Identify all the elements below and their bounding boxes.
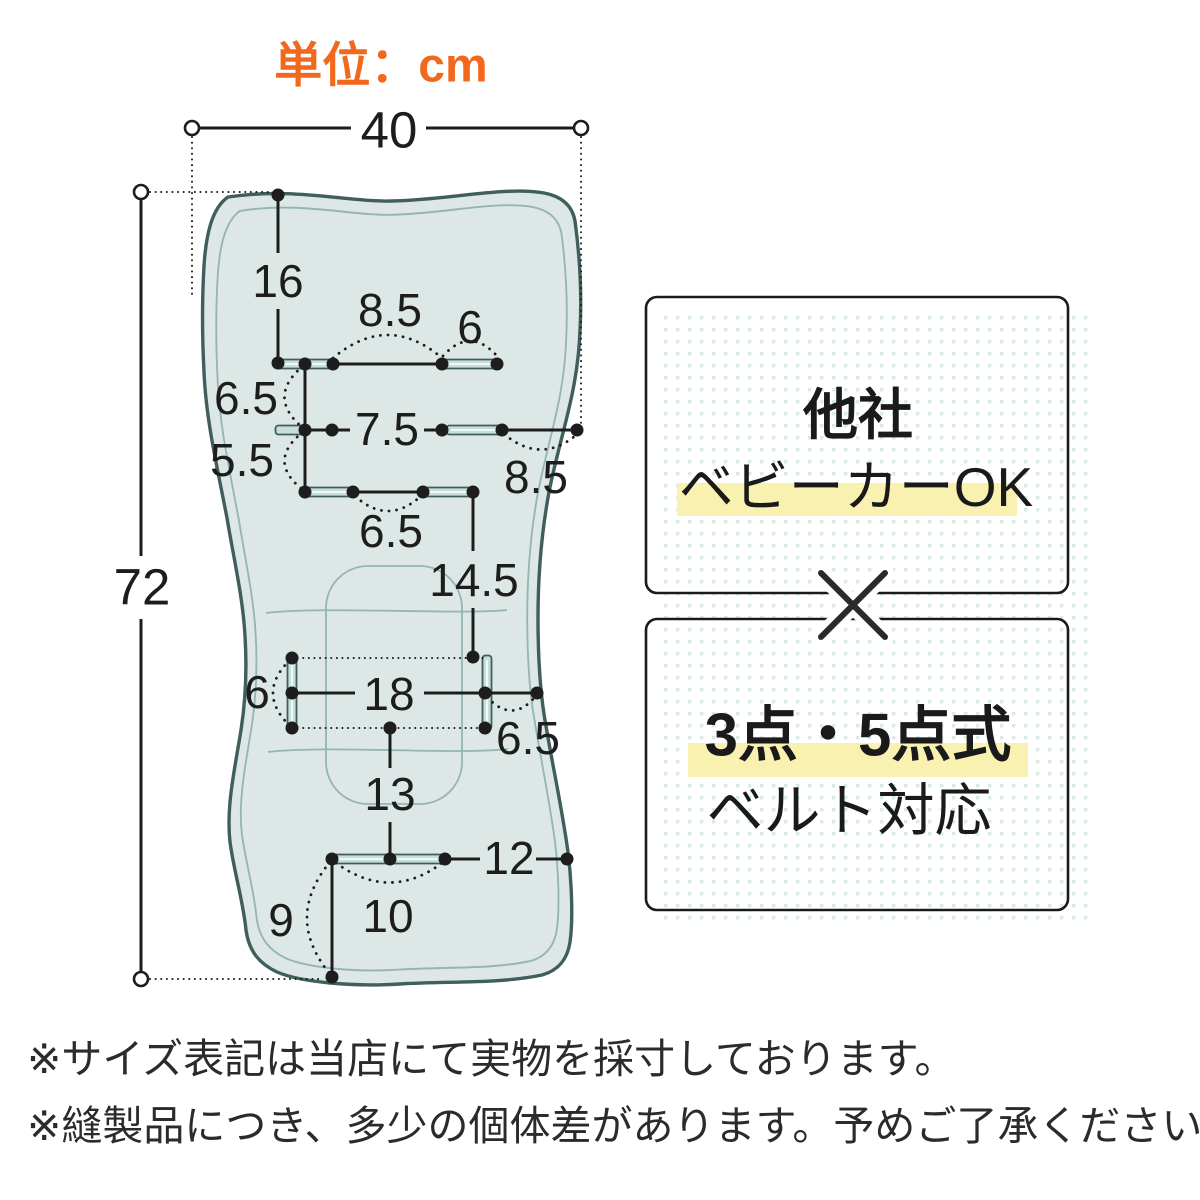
dim-waist-span: 18 [363, 668, 414, 720]
dim-row2-to-edge: 8.5 [504, 451, 568, 503]
footnote-variance: ※縫製品につき、多少の個体差があります。予めご了承ください。 [27, 1103, 1200, 1149]
dim-waist-slot: 6 [244, 666, 270, 718]
footnotes: ※サイズ表記は当店にて実物を採寸しております。 ※縫製品につき、多少の個体差があ… [27, 1036, 1200, 1149]
dim-bottom-to-hem: 9 [268, 894, 294, 946]
callout-box1-title: 他社 [802, 384, 913, 446]
callout-box1-highlight-text: ベビーカーOK [679, 456, 1034, 518]
dim-row1-to-row2: 6.5 [214, 372, 278, 424]
dim-row3-gap: 6.5 [359, 505, 423, 557]
dim-row2-to-row3: 5.5 [210, 434, 274, 486]
dim-waist-to-edge: 6.5 [496, 712, 560, 764]
dim-shoulder-slot: 6 [457, 301, 483, 353]
dim-row3-to-waist: 14.5 [429, 554, 519, 606]
dim-shoulder-gap: 8.5 [358, 284, 422, 336]
callout-box2-highlight-text: 3点・5点式 [705, 702, 1012, 769]
dim-bottom-to-edge: 12 [483, 832, 534, 884]
unit-label: 単位：cm [274, 40, 487, 93]
callout-box2-subtitle: ベルト対応 [707, 779, 992, 843]
footnote-measurement: ※サイズ表記は当店にて実物を採寸しております。 [27, 1036, 956, 1082]
size-diagram-canvas: 単位：cm [0, 0, 1200, 1200]
dim-bottom-slot: 10 [362, 890, 413, 942]
dim-waist-to-bottom: 13 [364, 768, 415, 820]
dim-head-top-to-slot: 16 [252, 255, 303, 307]
callout-panel: 他社 ベビーカーOK 3点・5点式 ベルト対応 [646, 297, 1090, 921]
dim-overall-width: 40 [361, 102, 418, 159]
dim-row2-gap: 7.5 [355, 403, 419, 455]
dim-overall-height: 72 [114, 559, 171, 616]
